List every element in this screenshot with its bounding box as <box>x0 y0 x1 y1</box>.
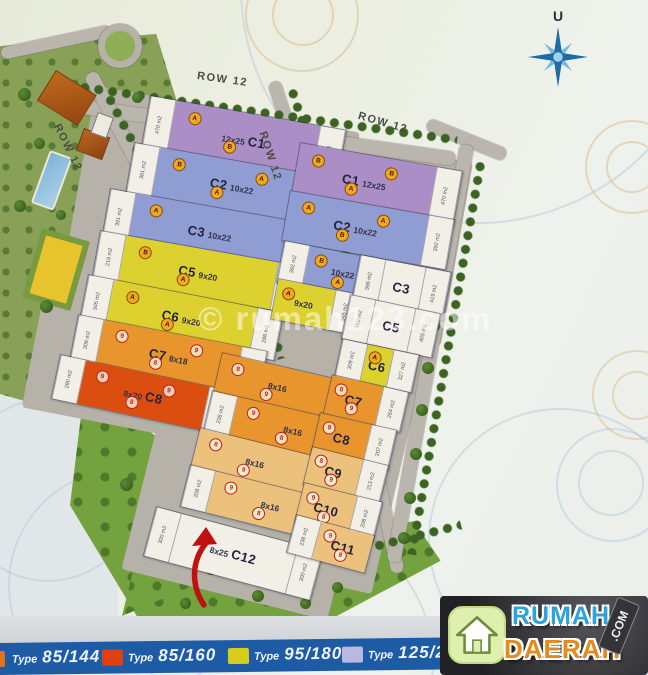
tree <box>398 532 410 544</box>
site-plan-flyer: S 470 m212x25C1AB470 m2361 m2C210x22BAA3… <box>0 0 648 675</box>
lot-status-marker: 9 <box>95 369 110 384</box>
tree <box>18 88 31 101</box>
tree <box>132 92 143 103</box>
lot-status-marker: A <box>254 172 269 187</box>
tree <box>252 590 264 602</box>
house-icon <box>448 606 506 664</box>
tree <box>56 210 66 220</box>
tree <box>410 448 422 460</box>
lot-status-marker: 8 <box>230 362 246 378</box>
lot-status-marker: B <box>311 153 326 168</box>
tree <box>422 362 434 374</box>
lot-status-marker: A <box>301 200 316 215</box>
lot-status-marker: 8 <box>208 437 224 453</box>
lot-status-marker: 9 <box>189 344 204 359</box>
lot-status-marker: B <box>138 245 153 260</box>
legend-label: Type85/160 <box>128 645 217 666</box>
block-label: C3 <box>391 278 411 296</box>
lot-status-marker: B <box>172 157 187 172</box>
watermark: © rumah123.com <box>198 300 492 338</box>
block-label: C310x22 <box>187 222 233 244</box>
legend-swatch <box>102 649 123 665</box>
compass-north-label: U <box>526 8 590 24</box>
logo-word-1: RUMAH <box>512 602 610 631</box>
tree <box>404 492 416 504</box>
legend-label: Type95/180 <box>254 644 343 665</box>
lot-status-marker: A <box>125 290 140 305</box>
lot-status-marker: A <box>148 204 163 219</box>
lot-status-marker: 9 <box>223 480 239 496</box>
lot-status-marker: 9 <box>114 329 129 344</box>
brand-logo: RUMAH DAERAH .COM <box>440 596 648 675</box>
tree <box>120 478 133 491</box>
red-annotation-arrow <box>142 525 234 621</box>
compass-star-icon <box>526 25 590 89</box>
legend-swatch <box>342 647 363 663</box>
lot-status-marker: B <box>384 166 399 181</box>
tree <box>40 300 53 313</box>
tree <box>14 200 26 212</box>
compass-rose: U <box>526 8 590 89</box>
lot-status-marker: A <box>187 111 202 126</box>
road-name-label: ROW 12 <box>196 70 248 89</box>
lot-status-marker: B <box>222 140 237 155</box>
tree <box>416 404 428 416</box>
tree <box>332 582 343 593</box>
legend-swatch <box>0 651 5 667</box>
lot-status-marker: 9 <box>161 383 176 398</box>
legend-label: Type85/144 <box>12 647 101 668</box>
roundabout <box>98 24 142 68</box>
lot-status-marker: B <box>314 253 329 268</box>
tree <box>34 138 45 149</box>
block-label: C8 <box>331 429 352 448</box>
lot-status-marker: 9 <box>246 406 262 422</box>
legend-swatch <box>228 648 249 664</box>
